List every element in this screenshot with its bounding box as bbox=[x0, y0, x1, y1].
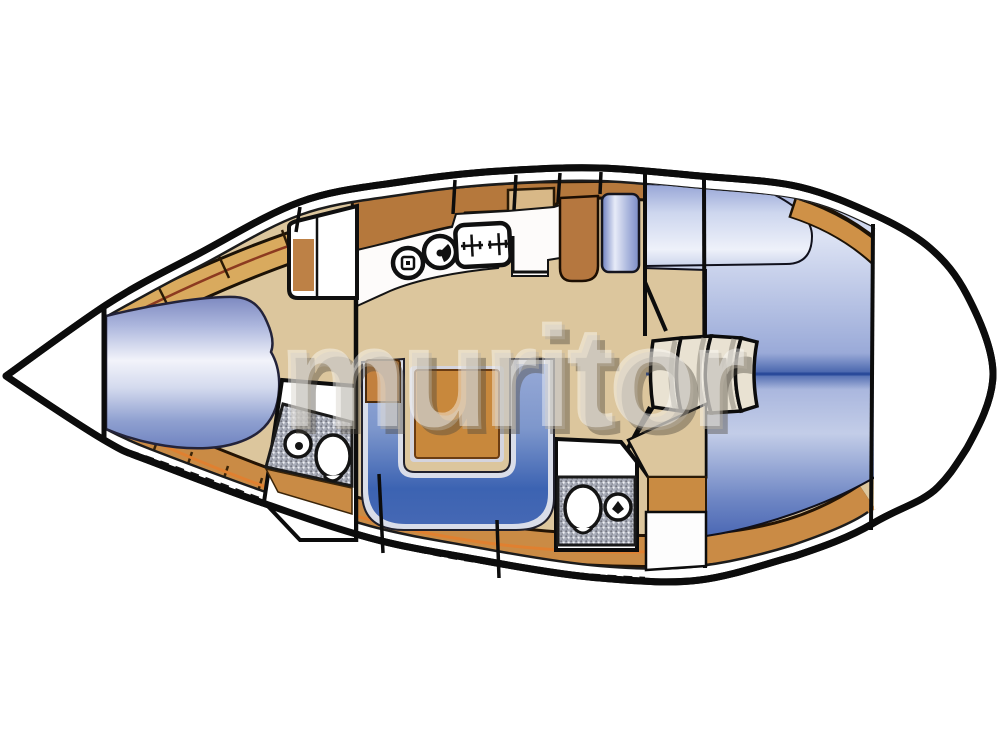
svg-text:muritor: muritor bbox=[278, 296, 744, 457]
